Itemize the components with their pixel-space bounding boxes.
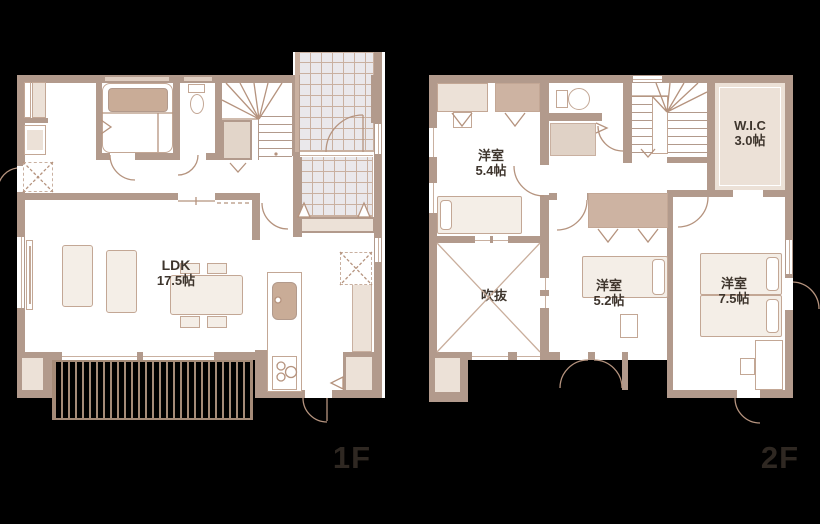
room-label-bedroom54-name: 洋室 bbox=[451, 148, 531, 163]
wall bbox=[429, 75, 437, 360]
room-label-bedroom75-name: 洋室 bbox=[694, 276, 774, 291]
room-label-void: 吹抜 bbox=[454, 288, 534, 303]
wall bbox=[540, 352, 560, 360]
desk bbox=[755, 340, 783, 390]
room-label-bedroom75: 洋室 7.5帖 bbox=[694, 276, 774, 306]
stairs-icon bbox=[668, 112, 707, 160]
room-label-bedroom52-size: 5.2帖 bbox=[569, 293, 649, 308]
wall bbox=[540, 83, 549, 360]
interior-window bbox=[540, 296, 549, 308]
floor-label-2f: 2F bbox=[730, 440, 820, 476]
washbasin-cabinet bbox=[550, 123, 596, 156]
wall bbox=[588, 352, 595, 360]
wall bbox=[508, 352, 517, 360]
room-label-bedroom54-size: 5.4帖 bbox=[451, 163, 531, 178]
wall bbox=[508, 236, 540, 243]
wall bbox=[622, 352, 628, 390]
balcony-block-inset bbox=[435, 358, 460, 392]
door-opening bbox=[733, 190, 763, 197]
desk bbox=[620, 314, 638, 338]
window bbox=[429, 128, 437, 157]
door-opening bbox=[540, 165, 549, 195]
wall bbox=[623, 83, 632, 163]
interior-window bbox=[493, 236, 508, 243]
pillow bbox=[440, 200, 452, 230]
window bbox=[429, 183, 437, 213]
floor-plan-image: LDK 17.5帖 1F bbox=[0, 0, 820, 524]
toilet-icon bbox=[568, 88, 590, 110]
wall bbox=[429, 75, 793, 83]
window bbox=[472, 352, 508, 360]
wall bbox=[429, 236, 475, 243]
closet bbox=[588, 193, 668, 228]
window bbox=[517, 352, 540, 360]
room-label-wic-name: W.I.C bbox=[710, 118, 790, 133]
floor-plan-2f: 洋室 5.4帖 吹抜 洋室 5.2帖 洋室 7.5帖 W.I.C 3.0帖 2F bbox=[0, 0, 820, 524]
door-opening bbox=[785, 278, 793, 310]
stair-rail bbox=[652, 96, 668, 154]
wall bbox=[667, 190, 733, 197]
wall bbox=[763, 190, 793, 197]
wall bbox=[667, 390, 737, 398]
window bbox=[633, 76, 662, 82]
wall bbox=[760, 390, 793, 398]
room-label-wic-size: 3.0帖 bbox=[710, 133, 790, 148]
wall bbox=[549, 193, 557, 200]
desk bbox=[453, 112, 472, 128]
room-label-bedroom54: 洋室 5.4帖 bbox=[451, 148, 531, 178]
room-label-wic: W.I.C 3.0帖 bbox=[710, 118, 790, 148]
room-label-bedroom52: 洋室 5.2帖 bbox=[569, 278, 649, 308]
room-label-bedroom75-size: 7.5帖 bbox=[694, 291, 774, 306]
pillow bbox=[652, 259, 665, 295]
chair bbox=[740, 358, 755, 375]
wall bbox=[549, 113, 602, 121]
toilet-tank bbox=[556, 90, 568, 108]
interior-window bbox=[475, 236, 490, 243]
stairs-icon bbox=[632, 96, 652, 158]
interior-window bbox=[540, 278, 549, 290]
room-label-bedroom52-name: 洋室 bbox=[569, 278, 649, 293]
closet bbox=[495, 83, 540, 112]
window bbox=[786, 240, 792, 274]
door-opening bbox=[737, 390, 760, 398]
closet bbox=[437, 83, 488, 112]
